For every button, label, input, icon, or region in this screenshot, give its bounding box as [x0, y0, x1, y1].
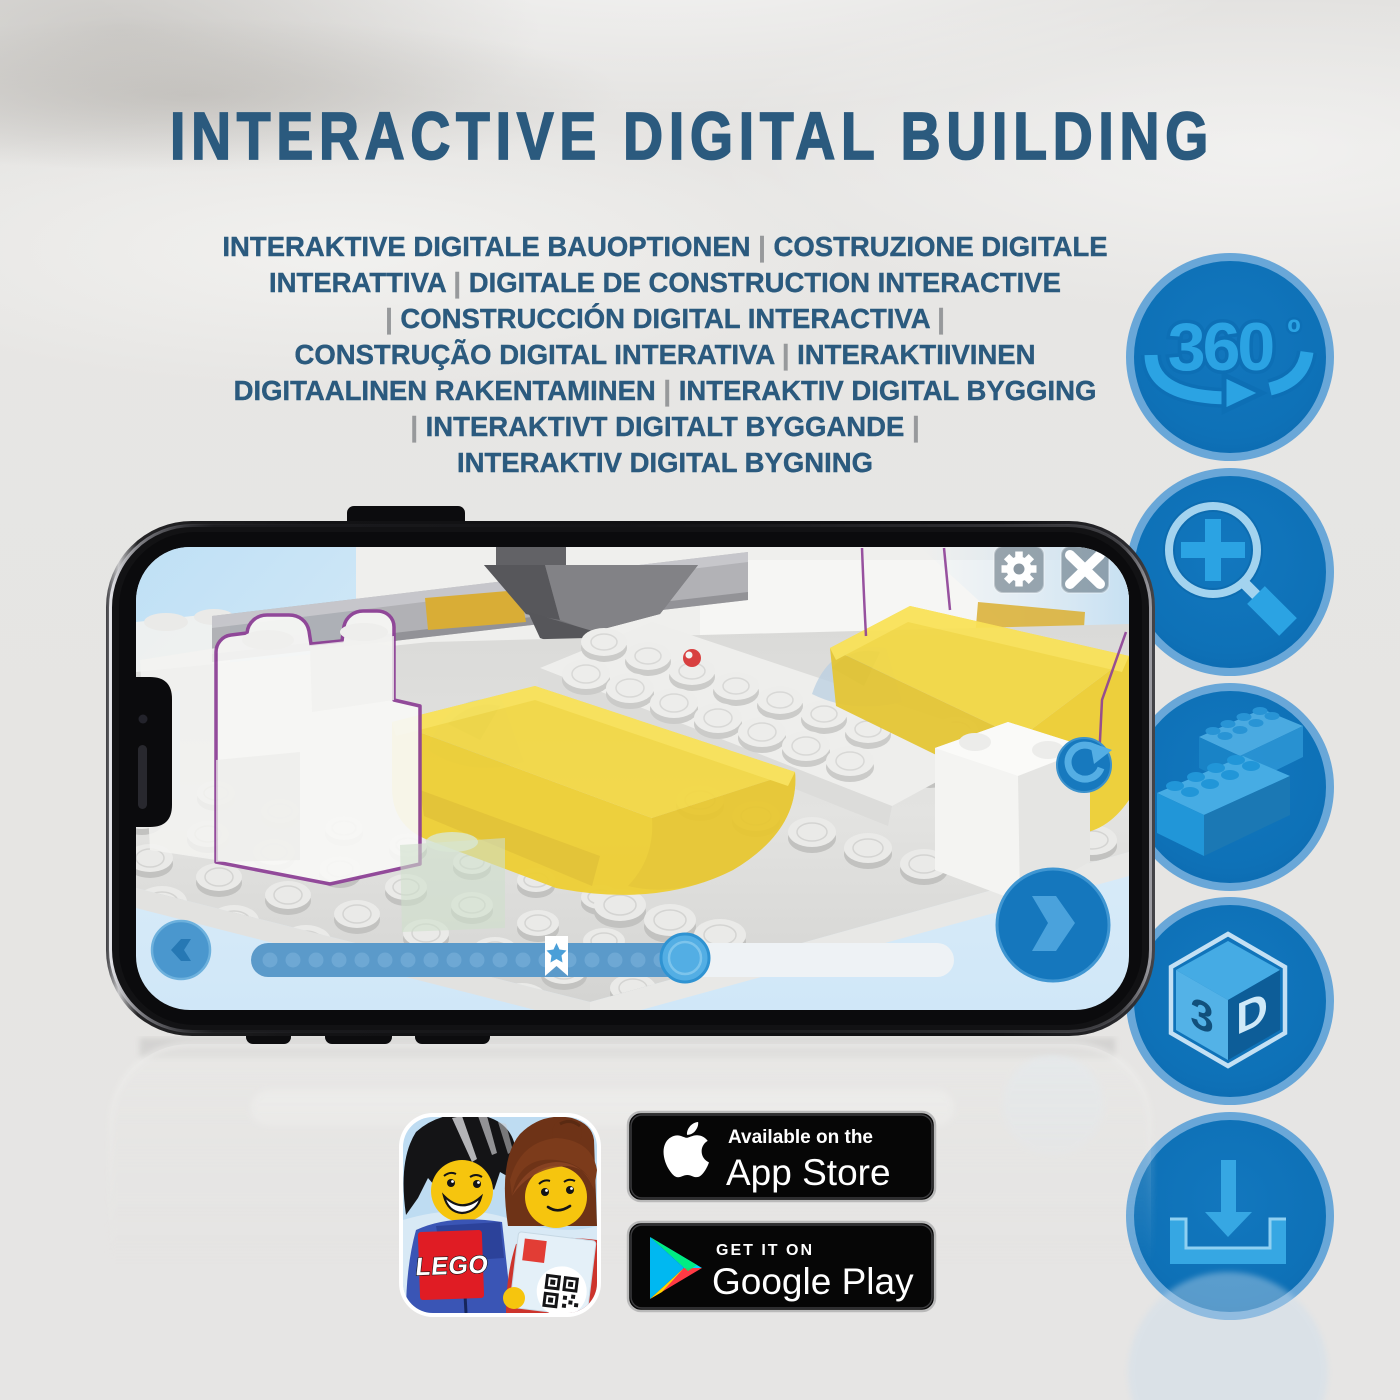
svg-text:Google Play: Google Play: [712, 1261, 914, 1302]
svg-text:GET IT ON: GET IT ON: [716, 1242, 814, 1259]
svg-text:App Store: App Store: [726, 1152, 891, 1193]
svg-text:LEGO: LEGO: [414, 1251, 490, 1282]
svg-text:Available on the: Available on the: [728, 1127, 873, 1148]
